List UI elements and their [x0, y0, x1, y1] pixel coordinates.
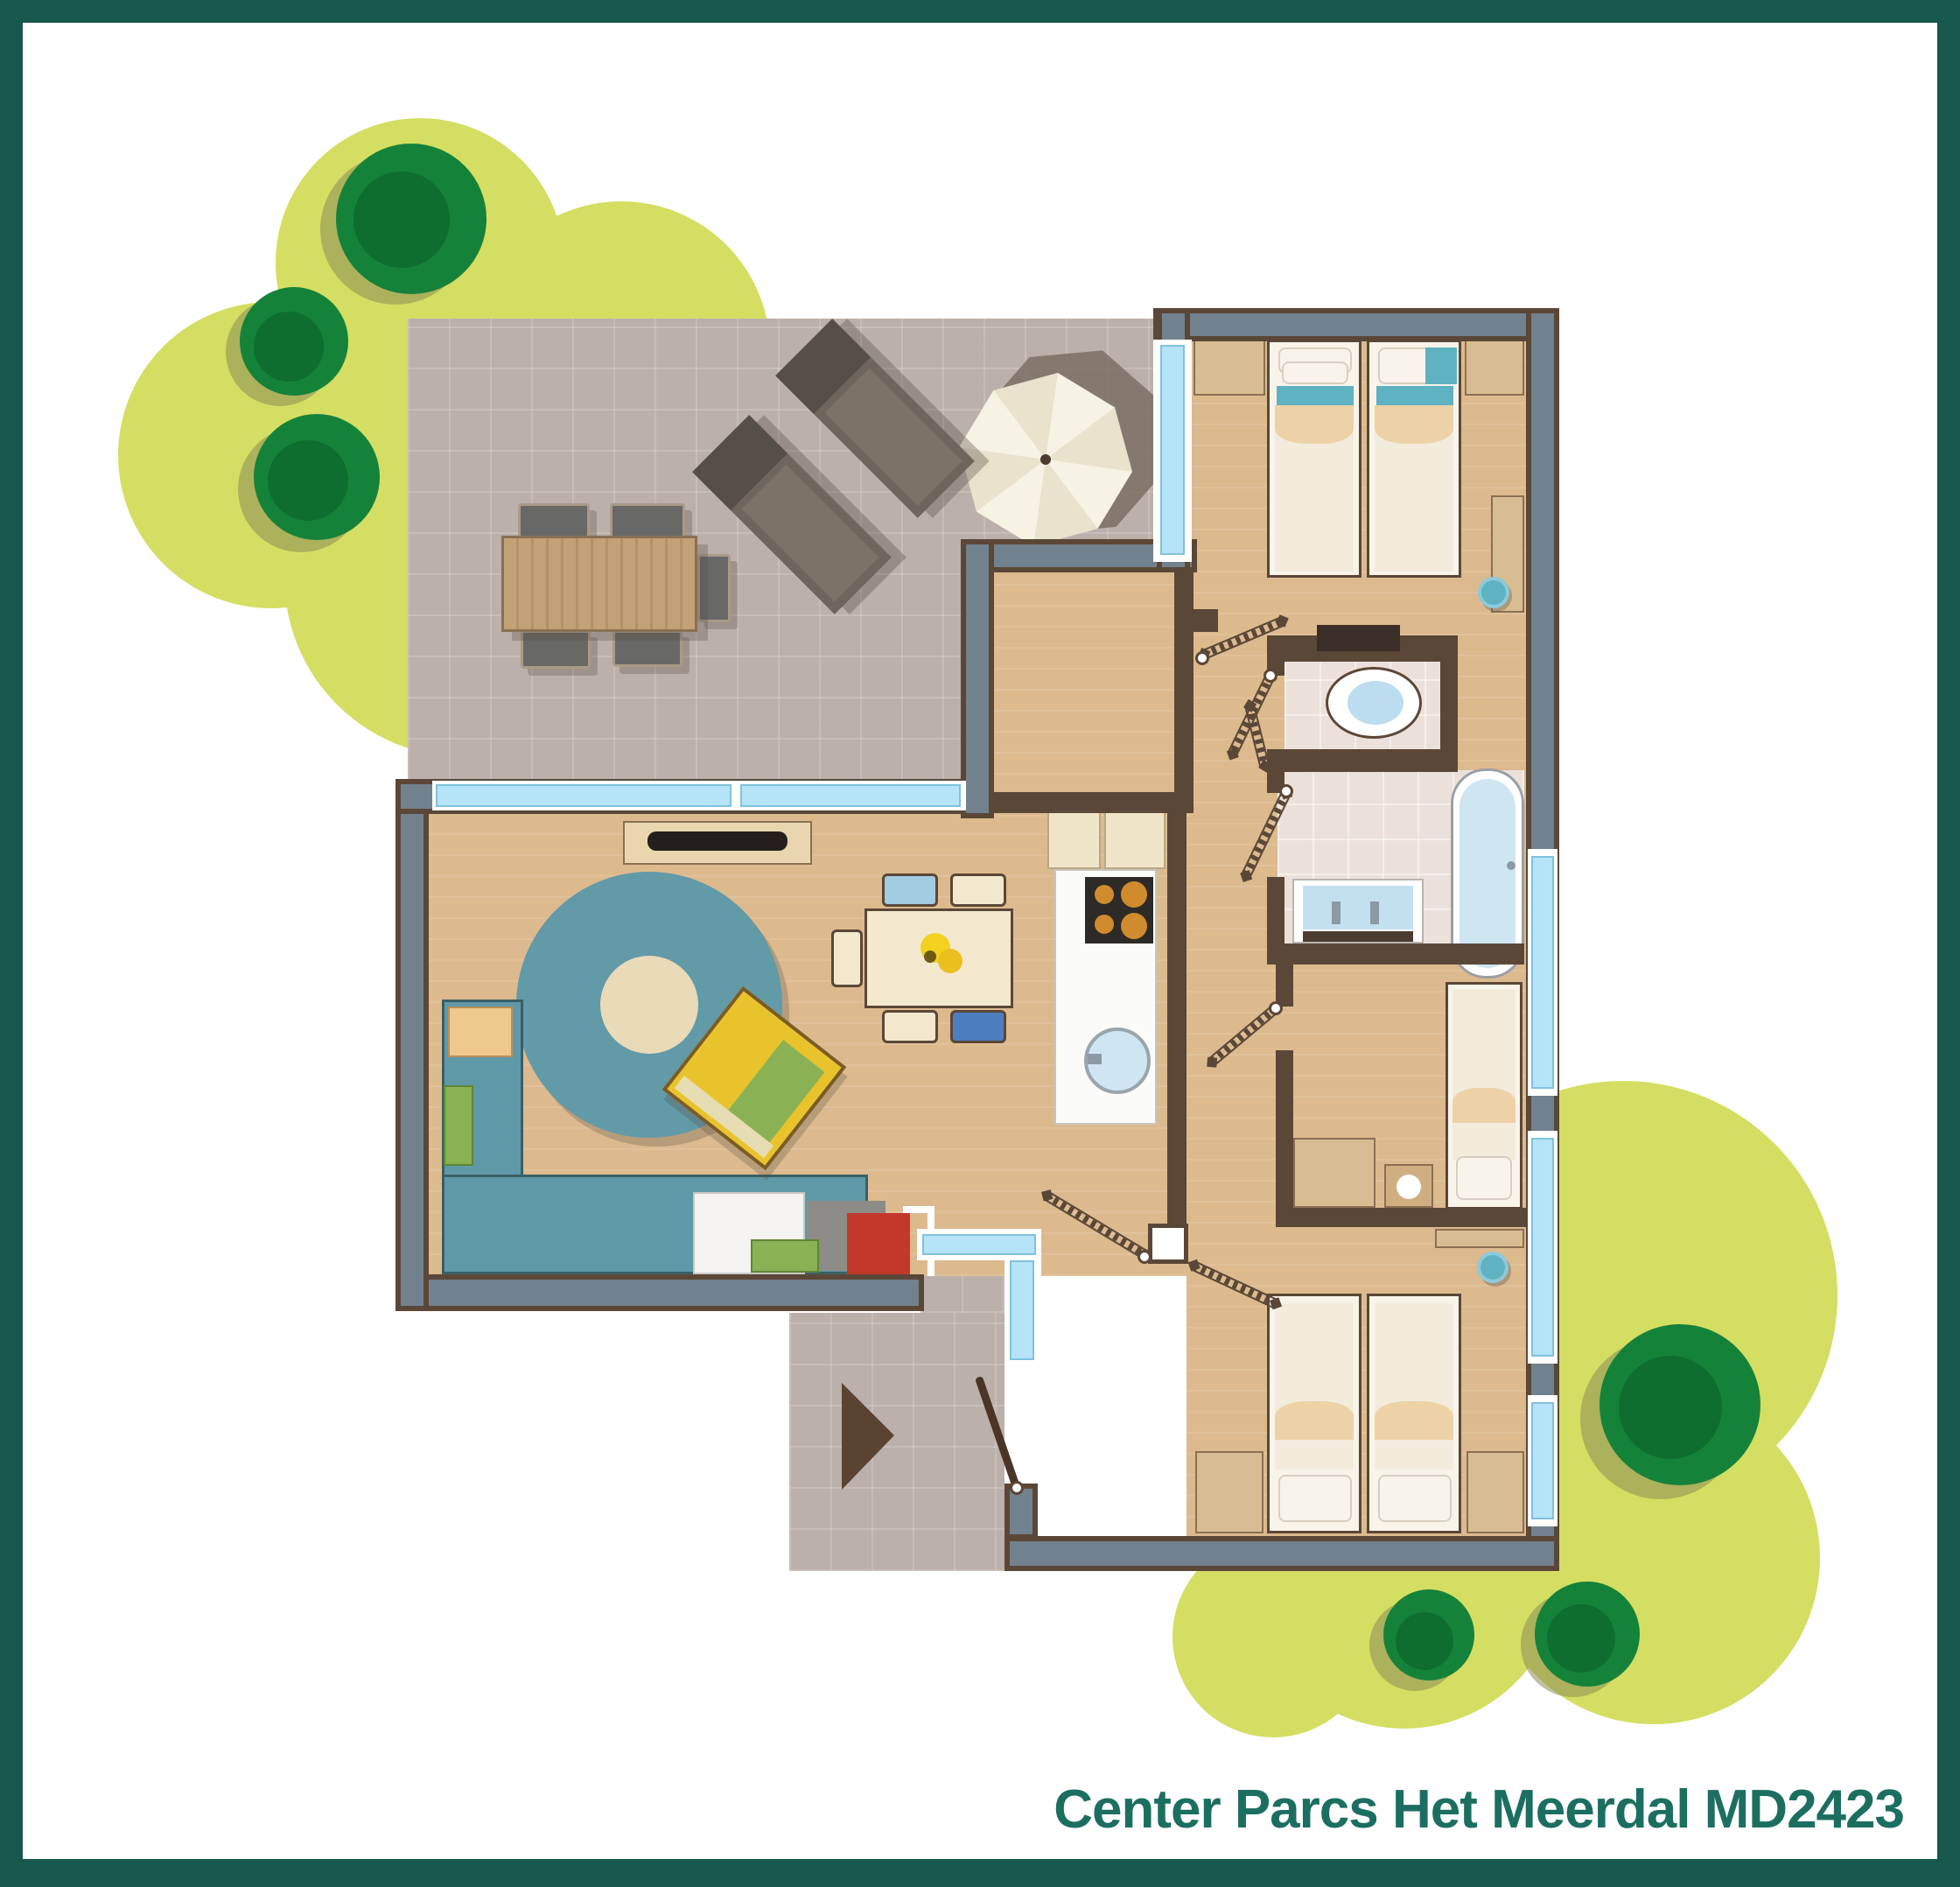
dining-chair: [950, 873, 1006, 907]
duvet-fold: [1375, 405, 1453, 444]
window: [1010, 1260, 1034, 1360]
garden-chair: [610, 503, 685, 538]
interior-wall: [1267, 749, 1442, 772]
duvet-fold: [1275, 1401, 1354, 1440]
headboard-shelf: [1465, 338, 1524, 396]
front-door-pivot: [1010, 1481, 1024, 1495]
flowers-icon: [924, 951, 936, 963]
bed-runner: [1277, 386, 1354, 405]
sofa-pillow: [448, 1007, 513, 1057]
twin-bed: [1267, 340, 1361, 578]
door-pivot: [1279, 784, 1293, 798]
door-pivot: [1269, 1001, 1283, 1015]
fireplace-stove: [847, 1213, 910, 1276]
door-swing-endcap: [1207, 1057, 1217, 1068]
stool: [1478, 577, 1509, 608]
tree-foliage: [353, 172, 450, 268]
closet: [1293, 1138, 1375, 1208]
interior-wall: [1440, 635, 1458, 772]
bathtub-tap-icon: [1507, 861, 1515, 870]
parasol-pole: [1040, 454, 1051, 465]
burner-icon: [1121, 913, 1147, 939]
door-swing-endcap: [1041, 1189, 1053, 1201]
tree-foliage: [1547, 1604, 1615, 1673]
frame-border: [0, 0, 23, 1887]
dining-chair: [882, 1010, 938, 1043]
tap-icon: [1332, 901, 1340, 924]
window: [1531, 1138, 1554, 1357]
interior-wall: [994, 792, 1193, 813]
window: [740, 784, 961, 807]
floor-plan-image: Center Parcs Het Meerdal MD2423: [0, 0, 1960, 1887]
bed-runner: [1376, 386, 1453, 405]
mattress: [1452, 989, 1515, 1161]
washbasin-water: [1303, 886, 1413, 929]
interior-wall: [1167, 812, 1186, 1224]
interior-wall: [1276, 1050, 1293, 1227]
faucet-icon: [1088, 1054, 1102, 1064]
tree-foliage: [1619, 1356, 1722, 1459]
window: [1160, 345, 1185, 555]
flowers-icon: [938, 949, 962, 973]
rug-center: [600, 956, 698, 1054]
tv-icon: [647, 831, 787, 851]
tap-icon: [1370, 901, 1379, 924]
sofa-cushion: [444, 1085, 473, 1166]
garden-chair: [612, 630, 682, 667]
door-pivot: [1263, 669, 1277, 683]
interior-wall: [1267, 877, 1284, 943]
duvet-fold: [1452, 1088, 1515, 1123]
garden-chair: [697, 554, 731, 622]
pillow: [1378, 347, 1432, 384]
window: [1531, 1402, 1554, 1519]
exterior-wall: [1153, 308, 1559, 341]
dining-chair: [882, 873, 938, 907]
frame-border: [0, 0, 1960, 23]
interior-wall: [1267, 943, 1524, 965]
exterior-wall: [1004, 1536, 1559, 1571]
toilet-bowl: [1347, 681, 1403, 725]
door-pivot: [1195, 651, 1209, 665]
window: [436, 784, 731, 807]
bathtub-water: [1459, 779, 1515, 968]
washstand-basin: [1396, 1175, 1421, 1199]
exterior-wall: [395, 1274, 924, 1311]
sofa-cushion: [751, 1239, 819, 1273]
interior-wall: [1186, 609, 1218, 632]
twin-bed: [1267, 1294, 1361, 1533]
pillow: [1456, 1156, 1512, 1200]
cistern: [1317, 625, 1400, 651]
tree-foliage: [254, 312, 324, 382]
pillow: [1278, 1475, 1352, 1522]
pillow: [1282, 361, 1348, 384]
twin-bed: [1367, 1294, 1461, 1533]
exterior-wall: [961, 539, 994, 818]
door-leaf: [1148, 1224, 1188, 1264]
garden-table: [501, 536, 697, 632]
burner-icon: [1095, 885, 1114, 904]
garden-chair: [521, 630, 591, 669]
pillow-accent: [1425, 347, 1457, 384]
single-bed: [1445, 982, 1522, 1210]
window: [922, 1234, 1036, 1255]
frame-border: [0, 1859, 1960, 1887]
storage-room-floor: [992, 572, 1190, 817]
mattress: [1275, 1303, 1354, 1470]
interior-wall: [1174, 572, 1193, 793]
dining-chair: [831, 929, 863, 987]
burner-icon: [1095, 915, 1114, 934]
stool: [1477, 1252, 1508, 1283]
bedside-cabinet: [1195, 1451, 1263, 1533]
door-pivot: [1137, 1250, 1151, 1264]
burner-icon: [1121, 881, 1147, 908]
pillow: [1378, 1475, 1452, 1522]
tree-foliage: [1396, 1612, 1453, 1670]
duvet-fold: [1375, 1401, 1453, 1440]
exterior-wall: [395, 779, 429, 1311]
headboard-shelf: [1193, 338, 1265, 396]
twin-bed: [1367, 340, 1461, 578]
stove: [1085, 877, 1153, 943]
caption-text: Center Parcs Het Meerdal MD2423: [1053, 1778, 1904, 1841]
dining-chair: [950, 1010, 1006, 1043]
tree-foliage: [268, 440, 348, 521]
bedside-cabinet: [1466, 1451, 1524, 1533]
washbasin-counter-edge: [1303, 931, 1413, 942]
frame-border: [1937, 0, 1960, 1887]
duvet-fold: [1275, 405, 1354, 444]
entrance-arrow-icon: [842, 1383, 894, 1490]
shelf: [1435, 1229, 1524, 1248]
window: [1531, 856, 1554, 1089]
garden-chair: [518, 503, 590, 538]
entrance-path: [789, 1313, 1004, 1571]
interior-wall: [1276, 965, 1293, 1007]
mattress: [1375, 1303, 1453, 1470]
interior-wall: [1276, 1208, 1526, 1227]
